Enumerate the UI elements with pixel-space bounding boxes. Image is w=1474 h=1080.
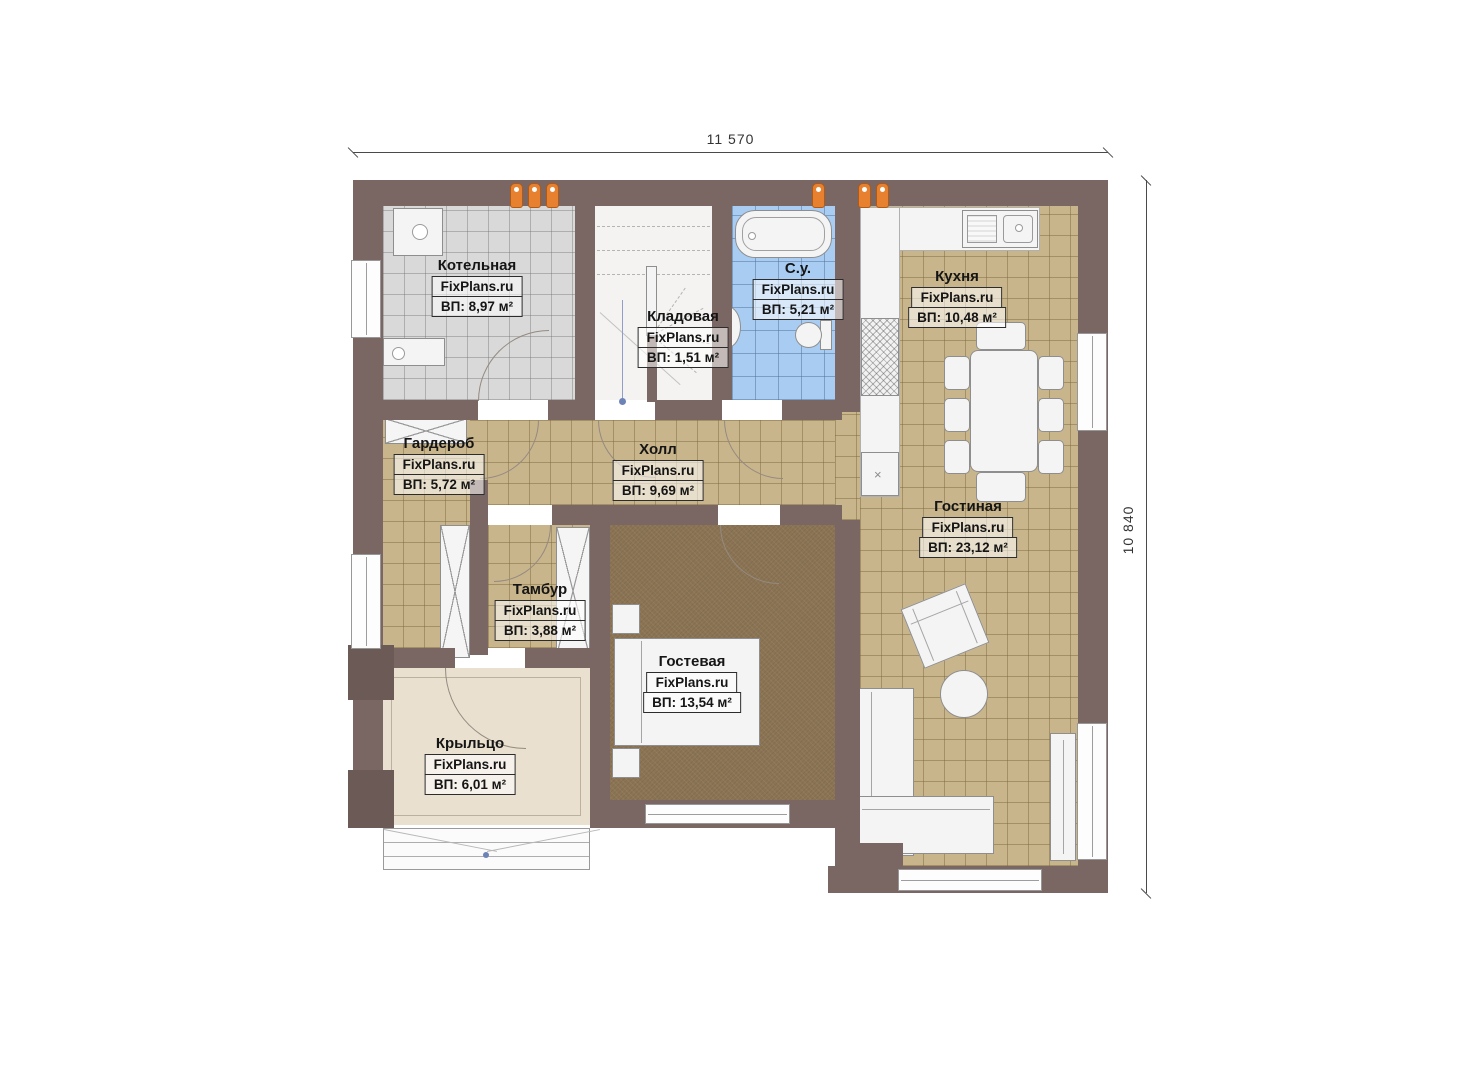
kitchen-cabinet: × <box>861 452 899 496</box>
room-name: Кладовая <box>647 308 719 325</box>
step-diagonal <box>384 829 497 852</box>
dining-chair <box>1038 356 1064 390</box>
room-brand: FixPlans.ru <box>638 327 729 348</box>
dining-chair <box>944 398 970 432</box>
room-area: ВП: 3,88 м² <box>495 620 585 641</box>
room-name: С.у. <box>785 260 811 277</box>
window-living-right <box>1077 723 1107 860</box>
room-brand: FixPlans.ru <box>432 276 523 297</box>
room-name: Холл <box>639 441 677 458</box>
room-brand: FixPlans.ru <box>923 517 1014 538</box>
room-area: ВП: 1,51 м² <box>638 347 728 368</box>
dining-chair <box>944 356 970 390</box>
room-brand: FixPlans.ru <box>753 279 844 300</box>
wall-h1-b <box>548 400 595 420</box>
wall-guest-left <box>590 525 610 828</box>
porch-steps <box>383 828 590 870</box>
room-area: ВП: 13,54 м² <box>643 692 741 713</box>
room-name: Гостевая <box>659 653 726 670</box>
room-name: Гардероб <box>404 435 475 452</box>
wall-top <box>353 180 1108 206</box>
wall-h2-a <box>552 505 718 525</box>
room-area: ВП: 6,01 м² <box>425 774 515 795</box>
vent-pipe <box>546 183 559 208</box>
room-name: Крыльцо <box>436 735 504 752</box>
dimension-line-right <box>1146 180 1147 893</box>
toilet-bowl <box>795 322 822 348</box>
room-label-boiler: Котельная FixPlans.ru ВП: 8,97 м² <box>432 257 523 317</box>
closet-left <box>440 525 470 658</box>
room-label-living: Гостиная FixPlans.ru ВП: 23,12 м² <box>919 498 1017 558</box>
room-label-guest: Гостевая FixPlans.ru ВП: 13,54 м² <box>643 653 741 713</box>
room-brand: FixPlans.ru <box>394 454 485 475</box>
coffee-table <box>940 670 988 718</box>
wall-corner-block <box>848 843 903 868</box>
stair-tread <box>597 226 710 227</box>
room-brand: FixPlans.ru <box>647 672 738 693</box>
sink-drainer <box>967 215 997 243</box>
dining-chair <box>944 440 970 474</box>
room-name: Кухня <box>935 268 979 285</box>
window-living-bottom <box>898 869 1042 891</box>
kitchen-sink <box>962 210 1038 248</box>
tv-cabinet-line <box>1063 740 1064 854</box>
stair-direction-line <box>622 300 623 400</box>
room-label-porch: Крыльцо FixPlans.ru ВП: 6,01 м² <box>425 735 516 795</box>
room-area: ВП: 10,48 м² <box>908 307 1006 328</box>
vent-pipe <box>528 183 541 208</box>
floor-plan-page: 11 570 10 840 × <box>0 0 1474 1080</box>
boiler-unit <box>393 208 443 256</box>
wall-h2-b <box>780 505 842 525</box>
room-brand: FixPlans.ru <box>425 754 516 775</box>
room-area: ВП: 23,12 м² <box>919 537 1017 558</box>
boiler-dial <box>412 224 428 240</box>
wall-porch-top-b <box>525 648 610 668</box>
room-label-storage: Кладовая FixPlans.ru ВП: 1,51 м² <box>638 308 729 368</box>
porch-pillar <box>348 645 394 700</box>
room-area: ВП: 5,21 м² <box>753 299 843 320</box>
dimension-height-label: 10 840 <box>1120 495 1136 565</box>
vent-pipe <box>858 183 871 208</box>
wall-mid-lower <box>835 520 860 893</box>
dining-chair <box>1038 398 1064 432</box>
vent-pipe <box>876 183 889 208</box>
bathtub-drain <box>748 232 756 240</box>
porch-pillar <box>348 770 394 828</box>
room-label-hall: Холл FixPlans.ru ВП: 9,69 м² <box>613 441 704 501</box>
room-label-vestibule: Тамбур FixPlans.ru ВП: 3,88 м² <box>495 581 586 641</box>
room-label-kitchen: Кухня FixPlans.ru ВП: 10,48 м² <box>908 268 1006 328</box>
utility-dial <box>392 347 405 360</box>
utility-unit <box>383 338 445 366</box>
window-guest-bottom <box>645 804 790 824</box>
sink-drain-dot <box>1015 224 1023 232</box>
room-name: Тамбур <box>513 581 567 598</box>
room-label-wardrobe: Гардероб FixPlans.ru ВП: 5,72 м² <box>394 435 485 495</box>
window-kitchen <box>1077 333 1107 431</box>
dining-table <box>970 350 1038 472</box>
dimension-width-label: 11 570 <box>353 131 1108 147</box>
step-line <box>384 842 589 843</box>
room-brand: FixPlans.ru <box>912 287 1003 308</box>
vent-pipe <box>510 183 523 208</box>
floor-passage <box>835 412 860 520</box>
wall-wardrobe-vestibule <box>470 480 488 655</box>
dining-chair <box>1038 440 1064 474</box>
step-marker-dot <box>483 852 489 858</box>
wall-boiler-stairs <box>575 205 595 400</box>
room-name: Гостиная <box>934 498 1002 515</box>
nightstand <box>612 748 640 778</box>
bathtub <box>735 210 832 258</box>
vent-pipe <box>812 183 825 208</box>
nightstand <box>612 604 640 634</box>
wall-h1-d <box>782 400 842 420</box>
wall-h1-c <box>655 400 722 420</box>
step-diagonal <box>487 829 600 852</box>
wall-h1-a <box>382 400 478 420</box>
stair-direction-dot <box>619 398 626 405</box>
stove <box>861 318 899 396</box>
room-area: ВП: 5,72 м² <box>394 474 484 495</box>
room-area: ВП: 9,69 м² <box>613 480 703 501</box>
window-wardrobe <box>351 554 381 649</box>
dimension-line-top <box>353 152 1108 153</box>
window-boiler <box>351 260 381 338</box>
room-name: Котельная <box>438 257 517 274</box>
wall-stairs-bath <box>712 205 732 400</box>
room-area: ВП: 8,97 м² <box>432 296 522 317</box>
cabinet-x-mark: × <box>874 468 888 482</box>
tv-cabinet <box>1050 733 1076 861</box>
stair-tread <box>597 250 710 251</box>
room-brand: FixPlans.ru <box>495 600 586 621</box>
room-label-bathroom: С.у. FixPlans.ru ВП: 5,21 м² <box>753 260 844 320</box>
room-brand: FixPlans.ru <box>613 460 704 481</box>
